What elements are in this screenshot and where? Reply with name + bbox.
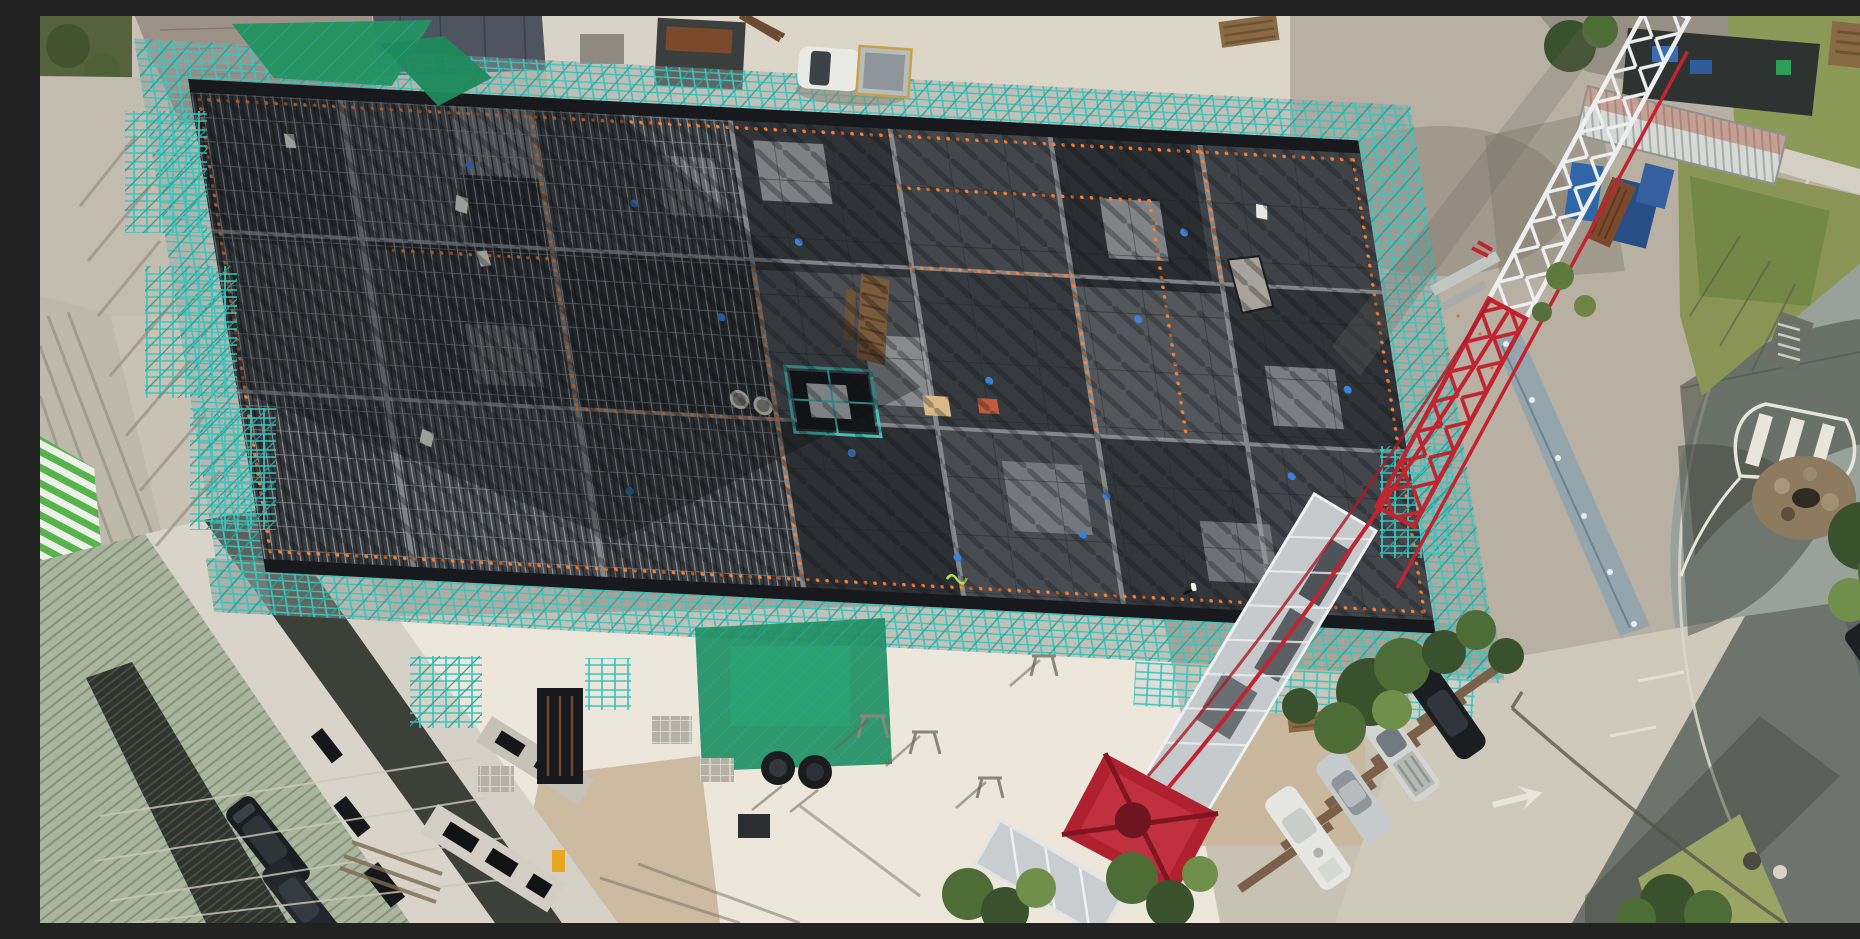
blue-tarp-2 [1690, 60, 1712, 74]
green-sign [1776, 60, 1791, 75]
white-ute [795, 42, 912, 110]
yellow-bollard [552, 850, 565, 872]
block-pile-2 [652, 716, 692, 744]
block-pile-1 [478, 766, 514, 792]
rooftop-unit [580, 34, 624, 64]
block-pile-3 [700, 758, 734, 782]
scaffold-shadow-stripes [190, 91, 1434, 622]
manhole-light [1773, 865, 1787, 879]
aerial-construction-photo: Top-down aerial view of a building const… [40, 16, 1860, 923]
manhole-dark [1743, 852, 1761, 870]
ute-windscreen [809, 51, 831, 86]
scene-canvas [40, 16, 1860, 923]
